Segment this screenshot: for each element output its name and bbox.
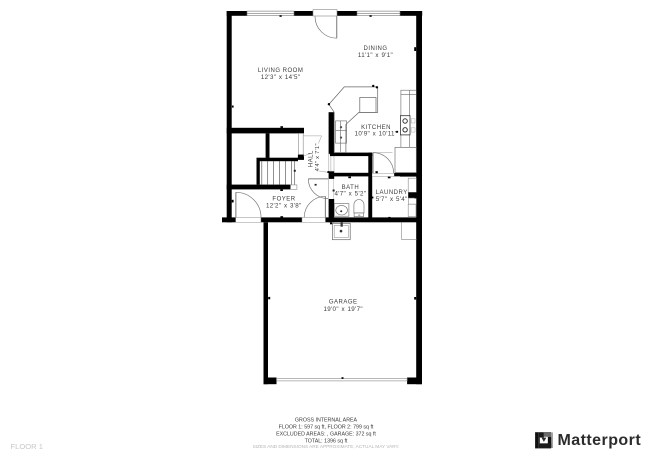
svg-text:12'3" x 14'5": 12'3" x 14'5" xyxy=(261,74,301,81)
svg-text:GARAGE: GARAGE xyxy=(329,300,358,306)
svg-text:EXCLUDED AREAS: , GARAGE: 372: EXCLUDED AREAS: , GARAGE: 372 sq ft xyxy=(276,432,376,438)
svg-text:10'9" x 10'11": 10'9" x 10'11" xyxy=(355,130,398,137)
svg-text:FLOOR 1: 597 sq ft, FLOOR 2: 7: FLOOR 1: 597 sq ft, FLOOR 2: 799 sq ft xyxy=(279,425,374,431)
svg-text:LAUNDRY: LAUNDRY xyxy=(376,190,408,196)
svg-text:SIZES AND DIMENSIONS ARE APPRO: SIZES AND DIMENSIONS ARE APPROXIMATE, AC… xyxy=(253,444,400,449)
svg-text:FLOOR 1: FLOOR 1 xyxy=(11,442,44,451)
svg-text:Matterport: Matterport xyxy=(558,432,642,449)
svg-text:4'4" x 7'1": 4'4" x 7'1" xyxy=(315,143,321,171)
svg-text:5'7" x 5'4": 5'7" x 5'4" xyxy=(376,196,408,203)
svg-text:12'2" x 3'8": 12'2" x 3'8" xyxy=(266,203,302,210)
svg-text:4'7" x 5'2": 4'7" x 5'2" xyxy=(334,191,366,198)
svg-text:GROSS INTERNAL AREA: GROSS INTERNAL AREA xyxy=(295,418,358,424)
svg-text:HALL: HALL xyxy=(309,150,315,167)
svg-text:11'1" x 9'1": 11'1" x 9'1" xyxy=(358,52,393,59)
svg-text:FOYER: FOYER xyxy=(272,197,295,203)
svg-text:LIVING ROOM: LIVING ROOM xyxy=(258,68,304,74)
svg-text:19'0" x 19'7": 19'0" x 19'7" xyxy=(323,306,363,313)
